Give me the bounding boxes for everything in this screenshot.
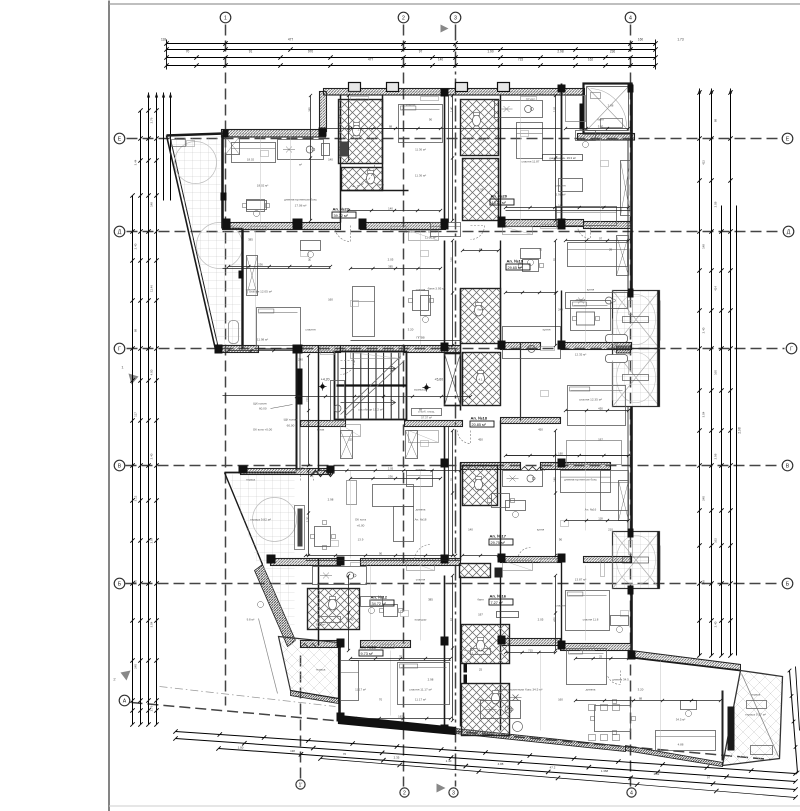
svg-text:138: 138 [290,749,295,753]
svg-text:162: 162 [558,204,563,208]
svg-text:450: 450 [538,428,543,432]
svg-text:спалня: спалня [246,288,256,292]
svg-text:97: 97 [599,237,603,241]
svg-text:3.20: 3.20 [306,516,310,522]
svg-text:60,00: 60,00 [259,407,267,411]
svg-text:11.36 м²: 11.36 м² [415,148,426,152]
svg-text:2.08: 2.08 [714,201,718,207]
svg-text:1.00: 1.00 [238,746,244,750]
svg-text:25: 25 [450,478,454,482]
svg-text:148: 148 [150,202,154,207]
svg-text:197: 197 [598,438,603,442]
svg-text:баня: баня [477,488,484,492]
svg-text:140: 140 [388,207,393,211]
svg-text:Б: Б [786,581,790,587]
svg-text:капак: капак [317,428,325,432]
svg-text:1.90: 1.90 [487,49,493,53]
svg-text:90: 90 [308,258,312,262]
svg-text:715: 715 [528,649,533,653]
svg-text:4.00: 4.00 [150,369,154,375]
svg-text:ПГУВО: ПГУВО [526,98,536,102]
svg-text:20.85 м²: 20.85 м² [472,423,487,427]
svg-text:Г: Г [790,346,793,352]
svg-text:118: 118 [598,517,603,521]
svg-text:118: 118 [161,37,166,41]
svg-text:баня: баня [477,138,484,142]
svg-text:спалня 11.17 м²: спалня 11.17 м² [409,688,432,692]
svg-text:2.98: 2.98 [738,427,742,433]
svg-text:1.73: 1.73 [677,37,683,41]
svg-text:спалня: спалня [416,578,426,582]
svg-text:34.72 м²: 34.72 м² [372,602,387,606]
svg-text:баня: баня [377,183,384,187]
svg-text:2: 2 [403,790,406,796]
svg-text:7.27 м²: 7.27 м² [491,601,504,605]
svg-text:ПГУВО: ПГУВО [356,98,366,102]
svg-text:3.44: 3.44 [134,159,138,165]
svg-text:97: 97 [450,618,454,622]
svg-text:ОК кота: ОК кота [355,518,366,522]
svg-text:11.46: 11.46 [150,285,154,292]
svg-text:47.2: 47.2 [550,765,556,769]
svg-text:160: 160 [450,257,454,262]
svg-text:210: 210 [608,528,613,532]
svg-text:ОК кота +0,00: ОК кота +0,00 [253,428,273,432]
svg-text:ПГ'ВВ: ПГ'ВВ [416,336,424,340]
svg-text:11.00 м²: 11.00 м² [425,236,437,240]
svg-text:ЩК копия: ЩК копия [253,402,267,406]
svg-text:715: 715 [518,57,524,61]
svg-text:13.27 м²: 13.27 м² [492,201,507,205]
svg-text:236: 236 [258,263,263,267]
svg-text:115: 115 [478,358,483,362]
svg-text:кухня: кухня [543,328,551,332]
svg-text:117: 117 [134,412,138,417]
svg-text:70: 70 [379,698,383,702]
svg-text:477: 477 [368,57,374,61]
svg-text:140: 140 [553,477,557,482]
svg-text:Е: Е [786,136,790,142]
svg-text:2.40: 2.40 [702,327,706,333]
svg-text:140: 140 [328,158,333,162]
svg-text:2.05: 2.05 [388,467,394,471]
svg-text:34.5 м²: 34.5 м² [676,718,685,722]
svg-text:60,00: 60,00 [287,424,295,428]
svg-text:Ап. №22: Ап. №22 [333,207,350,212]
svg-text:70: 70 [343,752,347,756]
svg-text:348: 348 [702,580,706,585]
svg-text:Е: Е [118,136,122,142]
svg-text:дневна 34.5: дневна 34.5 [612,678,629,682]
svg-text:88: 88 [419,408,423,412]
svg-text:385: 385 [248,238,253,242]
svg-text:197: 197 [478,613,483,617]
svg-text:412: 412 [702,160,706,165]
svg-text:3: 3 [452,790,455,796]
svg-text:88: 88 [389,125,393,129]
svg-text:Ап. №18: Ап. №18 [415,518,427,522]
svg-text:+0,00: +0,00 [357,524,365,528]
svg-text:2.76: 2.76 [150,705,154,711]
svg-text:3.04: 3.04 [702,411,706,417]
svg-text:2.98: 2.98 [557,49,563,53]
svg-text:25: 25 [599,655,603,659]
svg-text:спалня: спалня [305,328,315,332]
svg-text:Ап. №18: Ап. №18 [471,416,488,421]
svg-text:88: 88 [134,329,138,333]
svg-text:дневна-кухненски бокс 34.5 м²: дневна-кухненски бокс 34.5 м² [499,688,543,692]
svg-text:1': 1' [299,782,303,788]
svg-text:тераса: тераса [246,478,256,482]
svg-text:4.88: 4.88 [498,762,504,766]
svg-text:асансьор: асансьор [414,388,427,392]
svg-text:Г: Г [118,346,121,352]
svg-text:88: 88 [639,697,643,701]
svg-text:2.98: 2.98 [714,453,718,459]
svg-text:57.37 м²: 57.37 м² [421,416,432,420]
svg-text:баня: баня [477,598,484,602]
svg-text:стълбище 15.2 м²: стълбище 15.2 м² [358,408,383,412]
svg-text:спалня 11.87: спалня 11.87 [522,160,540,164]
svg-text:240: 240 [558,308,563,312]
svg-text:А: А [123,698,127,704]
svg-text:ДНЕВНА-КУХН. БОКС: ДНЕВНА-КУХН. БОКС [404,230,437,234]
svg-text:13.9: 13.9 [358,538,364,542]
svg-text:дневна-кухненски бокс: дневна-кухненски бокс [564,478,597,482]
svg-text:97: 97 [707,775,711,779]
svg-text:Ап. №13: Ап. №13 [360,645,377,650]
svg-text:баня: баня [477,698,484,702]
svg-text:477: 477 [288,37,294,41]
svg-text:Ап. №17: Ап. №17 [490,534,507,539]
svg-text:2.40: 2.40 [150,453,154,459]
svg-text:4.1: 4.1 [478,378,482,382]
svg-text:70: 70 [399,655,403,659]
svg-text:90: 90 [559,538,563,542]
svg-text:11.98 м²: 11.98 м² [257,338,268,342]
svg-text:2.04: 2.04 [150,537,154,543]
svg-text:3.04: 3.04 [150,621,154,627]
svg-text:дневна-кухненски бокс: дневна-кухненски бокс [284,198,317,202]
svg-text:91: 91 [249,49,253,53]
svg-text:2.76: 2.76 [150,117,154,123]
svg-text:11.36 м²: 11.36 м² [415,174,426,178]
svg-text:4: 4 [629,15,632,21]
svg-text:3.20: 3.20 [598,125,604,129]
svg-text:11.17 м²: 11.17 м² [415,698,426,702]
svg-text:2.40: 2.40 [714,621,718,627]
svg-text:4.88: 4.88 [678,743,684,747]
svg-text:тераса 9.27 м²: тераса 9.27 м² [745,713,766,717]
svg-text:29.65 м²: 29.65 м² [508,266,523,270]
svg-text:18.02: 18.02 [247,158,255,162]
svg-text:спалня 12.35 м²: спалня 12.35 м² [579,398,602,402]
svg-text:Д: Д [118,229,122,235]
svg-text:Ап. №12: Ап. №12 [371,595,388,600]
svg-text:70: 70 [186,49,190,53]
svg-text:39.32 м²: 39.32 м² [334,214,349,218]
svg-text:25: 25 [609,248,613,252]
svg-text:тераса 9.82 м²: тераса 9.82 м² [250,518,271,522]
svg-text:Б: Б [118,581,122,587]
svg-text:м²: м² [299,163,302,167]
svg-text:2.98: 2.98 [608,104,614,108]
svg-text:1: 1 [224,15,227,21]
svg-text:В: В [118,463,122,469]
svg-text:70: 70 [553,258,557,262]
svg-text:970: 970 [308,49,314,53]
svg-text:9.8 м²: 9.8 м² [247,618,255,622]
svg-text:2: 2 [402,15,405,21]
svg-text:240: 240 [702,496,706,501]
svg-text:2.05: 2.05 [538,618,544,622]
svg-text:дневна: дневна [416,508,426,512]
svg-text:4: 4 [630,790,633,796]
svg-text:12.35 м²: 12.35 м² [575,353,586,357]
svg-text:Д: Д [787,229,791,235]
svg-text:29.75 м²: 29.75 м² [491,541,506,545]
svg-text:162: 162 [398,715,403,719]
svg-text:450: 450 [553,617,557,622]
svg-text:Ап. №19: Ап. №19 [507,259,524,264]
svg-text:414: 414 [714,286,718,291]
svg-text:кухня: кухня [537,528,545,532]
svg-text:90: 90 [429,118,433,122]
svg-text:2.2: 2.2 [478,648,482,652]
svg-text:спалня 11.8: спалня 11.8 [583,618,599,622]
svg-text:ЩК копия: ЩК копия [284,418,298,422]
svg-text:3: 3 [454,15,457,21]
svg-text:90: 90 [379,552,383,556]
svg-text:190: 190 [134,580,138,585]
svg-text:кухня: кухня [587,288,595,292]
svg-text:18.02 м²: 18.02 м² [257,184,268,188]
svg-text:450: 450 [598,407,603,411]
svg-text:1.40: 1.40 [450,106,454,112]
svg-text:Ап. №16: Ап. №16 [490,594,507,599]
svg-text:спалня: спалня [416,288,426,292]
svg-text:11.17 м²: 11.17 м² [355,688,366,692]
svg-text:9.73 м²: 9.73 м² [316,623,326,627]
svg-text:+4,20: +4,20 [321,378,330,382]
svg-text:баня 3.95 м²: баня 3.95 м² [428,287,446,291]
svg-text:385: 385 [428,598,433,602]
svg-text:162: 162 [588,57,594,61]
svg-text:дневна: дневна [586,688,596,692]
svg-text:1.40: 1.40 [446,759,452,763]
svg-text:спалня: спалня [555,604,565,608]
svg-text:160: 160 [558,698,563,702]
svg-text:9.73 м²: 9.73 м² [361,652,374,656]
svg-text:баня: баня [597,118,604,122]
svg-text:2.32: 2.32 [654,772,660,776]
svg-text:1.368: 1.368 [601,769,609,773]
svg-text:13.87 м²: 13.87 м² [575,578,586,582]
svg-text:160: 160 [714,370,718,375]
svg-text:тераса: тераса [316,668,326,672]
svg-text:148: 148 [702,244,706,249]
svg-text:Ап. №16: Ап. №16 [585,508,597,512]
svg-text:236: 236 [388,475,393,479]
svg-text:160: 160 [638,37,644,41]
svg-text:баня: баня [477,308,484,312]
svg-text:97: 97 [419,49,423,53]
svg-text:3.20: 3.20 [638,688,644,692]
svg-text:385: 385 [308,107,312,112]
svg-text:2.98 м²: 2.98 м² [555,193,565,197]
svg-text:140: 140 [438,57,444,61]
svg-text:2.05: 2.05 [388,258,394,262]
svg-text:2.35: 2.35 [394,755,400,759]
svg-text:+5,60: +5,60 [435,378,444,382]
svg-text:спалня: спалня [406,103,416,107]
svg-text:88: 88 [714,119,718,123]
svg-text:спалня: спалня [555,184,565,188]
svg-text:162: 162 [714,538,718,543]
svg-text:210: 210 [538,93,543,97]
svg-text:1.40: 1.40 [358,395,364,399]
svg-text:3.95: 3.95 [478,188,484,192]
svg-text:118: 118 [346,617,350,622]
svg-text:715: 715 [306,397,310,402]
svg-text:2.05: 2.05 [553,106,557,112]
svg-text:450: 450 [478,438,483,442]
svg-text:3.20: 3.20 [408,328,414,332]
svg-text:140: 140 [468,528,473,532]
svg-text:тераса: тераса [751,693,761,697]
svg-text:25: 25 [479,668,483,672]
svg-text:385: 385 [388,265,393,269]
svg-text:17.08 м²: 17.08 м² [295,204,307,208]
svg-text:1.40: 1.40 [608,138,614,142]
svg-text:160: 160 [328,298,333,302]
svg-text:2.98: 2.98 [328,498,334,502]
svg-text:236: 236 [610,49,616,53]
svg-text:2.40: 2.40 [134,243,138,249]
svg-text:3.12: 3.12 [134,495,138,501]
svg-text:Ап. №20: Ап. №20 [491,194,508,199]
svg-text:В: В [786,463,790,469]
svg-text:240: 240 [134,664,138,669]
svg-text:240: 240 [298,358,303,362]
svg-text:160: 160 [558,452,563,456]
svg-text:2.98: 2.98 [428,678,434,682]
svg-text:дневна-кухн. 19.3 м²: дневна-кухн. 19.3 м² [549,156,576,160]
